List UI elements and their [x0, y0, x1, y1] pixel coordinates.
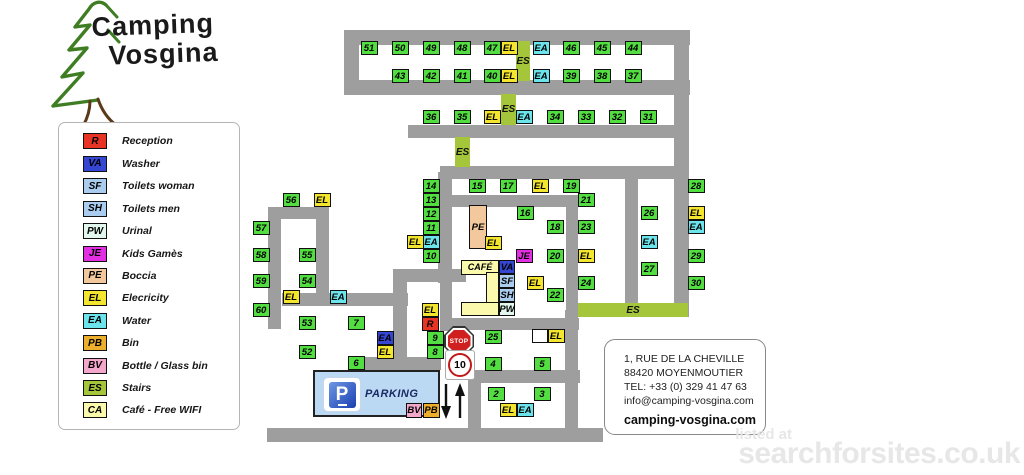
- pitch-36: 36: [423, 110, 440, 124]
- amenity-EL: EL: [532, 179, 549, 193]
- amenity-EA: EA: [423, 235, 440, 249]
- legend-label-ES: Stairs: [122, 382, 151, 394]
- pitch-42: 42: [423, 69, 440, 83]
- legend-swatch-PB: PB: [83, 335, 107, 351]
- pitch-33: 33: [578, 110, 595, 124]
- pitch-24: 24: [578, 276, 595, 290]
- pitch-51: 51: [361, 41, 378, 55]
- amenity-EL: EL: [314, 193, 331, 207]
- pitch-54: 54: [299, 274, 316, 288]
- contact-phone: TEL: +33 (0) 329 41 47 63: [624, 381, 765, 395]
- legend-item-ES: ESStairs: [83, 380, 239, 396]
- legend-swatch-CA: CA: [83, 402, 107, 418]
- amenity-BV: BV: [406, 403, 422, 418]
- pitch-43: 43: [392, 69, 409, 83]
- pitch-5: 5: [534, 357, 551, 371]
- pitch-16: 16: [517, 206, 534, 220]
- pitch-25: 25: [485, 330, 502, 344]
- pitch-3: 3: [534, 387, 551, 401]
- legend-swatch-EL: EL: [83, 290, 107, 306]
- legend-label-BV: Bottle / Glass bin: [122, 360, 208, 372]
- amenity-EL: EL: [407, 235, 424, 249]
- speed-limit-value: 10: [448, 353, 472, 377]
- amenity-EL: EL: [501, 69, 518, 83]
- road-segment: [440, 269, 452, 331]
- contact-card: 1, RUE DE LA CHEVILLE 88420 MOYENMOUTIER…: [604, 339, 766, 435]
- road-segment: [468, 377, 481, 435]
- pitch-13: 13: [423, 193, 440, 207]
- amenity-R: R: [422, 317, 439, 331]
- legend-item-PB: PBBin: [83, 335, 239, 351]
- amenity-EA: EA: [517, 403, 534, 417]
- amenity-EL: EL: [377, 345, 394, 359]
- pitch-23: 23: [578, 220, 595, 234]
- legend-swatch-ES: ES: [83, 380, 107, 396]
- legend-swatch-SH: SH: [83, 201, 107, 217]
- pitch-35: 35: [454, 110, 471, 124]
- stairs-strip: ES: [578, 303, 688, 317]
- pitch-32: 32: [609, 110, 626, 124]
- pitch-10: 10: [423, 249, 440, 263]
- legend-swatch-R: R: [83, 133, 107, 149]
- pitch-41: 41: [454, 69, 471, 83]
- stairs-strip: ES: [516, 41, 530, 81]
- pitch-14: 14: [423, 179, 440, 193]
- pitch-30: 30: [688, 276, 705, 290]
- amenity-VA: VA: [499, 260, 515, 274]
- contact-website: camping-vosgina.com: [624, 413, 765, 427]
- page: Camping Vosgina RReceptionVAWasherSFToil…: [0, 0, 1024, 475]
- legend-item-CA: CACafé - Free WIFI: [83, 402, 239, 418]
- legend-label-R: Reception: [122, 135, 173, 147]
- pitch-19: 19: [563, 179, 580, 193]
- legend-swatch-JE: JE: [83, 246, 107, 262]
- road-segment: [316, 207, 329, 306]
- legend-swatch-SF: SF: [83, 178, 107, 194]
- legend-item-SF: SFToilets woman: [83, 178, 239, 194]
- parking-label: PARKING: [365, 388, 418, 400]
- pitch-20: 20: [547, 249, 564, 263]
- pitch-18: 18: [547, 220, 564, 234]
- legend-label-EA: Water: [122, 315, 151, 327]
- pitch-34: 34: [547, 110, 564, 124]
- legend-item-SH: SHToilets men: [83, 201, 239, 217]
- amenity-EA: EA: [533, 41, 550, 55]
- contact-address-line2: 88420 MOYENMOUTIER: [624, 367, 765, 381]
- amenity-SF: SF: [499, 274, 515, 288]
- stairs-strip: ES: [501, 94, 516, 125]
- legend-label-PE: Boccia: [122, 270, 156, 282]
- legend-label-SF: Toilets woman: [122, 180, 195, 192]
- amenity-EA: EA: [377, 331, 394, 345]
- pitch-26: 26: [641, 206, 658, 220]
- pitch-55: 55: [299, 248, 316, 262]
- legend-item-R: RReception: [83, 133, 239, 149]
- pitch-40: 40: [484, 69, 501, 83]
- amenity-SH: SH: [499, 288, 515, 302]
- road-segment: [468, 370, 580, 383]
- legend-label-VA: Washer: [122, 158, 160, 170]
- pitch-45: 45: [594, 41, 611, 55]
- road-segment: [625, 172, 638, 303]
- pitch-31: 31: [640, 110, 657, 124]
- pitch-12: 12: [423, 207, 440, 221]
- pitch-46: 46: [563, 41, 580, 55]
- road-segment: [438, 172, 452, 283]
- amenity-EA: EA: [688, 220, 705, 234]
- amenity-JE: JE: [516, 249, 533, 263]
- two-way-arrows-icon: [437, 382, 467, 420]
- legend-label-JE: Kids Gamès: [122, 248, 183, 260]
- amenity-EL: EL: [485, 236, 502, 250]
- pitch-53: 53: [299, 316, 316, 330]
- road-segment: [268, 207, 281, 329]
- pitch-27: 27: [641, 262, 658, 276]
- pitch-11: 11: [423, 221, 440, 235]
- road-segment: [408, 125, 688, 138]
- pitch-60: 60: [253, 303, 270, 317]
- pitch-29: 29: [688, 249, 705, 263]
- stairs-strip: ES: [455, 137, 470, 167]
- legend-label-SH: Toilets men: [122, 203, 180, 215]
- pitch-39: 39: [563, 69, 580, 83]
- pitch-21: 21: [578, 193, 595, 207]
- pitch-49: 49: [423, 41, 440, 55]
- pitch-48: 48: [454, 41, 471, 55]
- speed-limit-sign-icon: 10: [445, 350, 475, 380]
- amenity-EL: EL: [283, 290, 300, 304]
- amenity-EL: EL: [500, 403, 517, 417]
- parking-icon: P: [323, 377, 361, 412]
- building-block: [532, 329, 548, 343]
- contact-email: info@camping-vosgina.com: [624, 395, 765, 409]
- amenity-EA: EA: [516, 110, 533, 124]
- pitch-6: 6: [348, 356, 365, 370]
- amenity-EL: EL: [484, 110, 501, 124]
- pitch-56: 56: [283, 193, 300, 207]
- pitch-37: 37: [625, 69, 642, 83]
- legend: RReceptionVAWasherSFToilets womanSHToile…: [58, 122, 240, 430]
- legend-swatch-VA: VA: [83, 156, 107, 172]
- pitch-4: 4: [485, 357, 502, 371]
- pitch-22: 22: [547, 288, 564, 302]
- legend-item-VA: VAWasher: [83, 156, 239, 172]
- legend-item-JE: JEKids Gamès: [83, 246, 239, 262]
- amenity-EL: EL: [422, 303, 439, 317]
- legend-swatch-PE: PE: [83, 268, 107, 284]
- legend-label-EL: Elecricity: [122, 292, 169, 304]
- road-segment: [440, 166, 688, 179]
- amenity-EA: EA: [641, 235, 658, 249]
- legend-item-PW: PWUrinal: [83, 223, 239, 239]
- legend-label-PB: Bin: [122, 337, 139, 349]
- road-segment: [267, 428, 603, 442]
- legend-label-PW: Urinal: [122, 225, 152, 237]
- building-block: [486, 272, 499, 304]
- pitch-47: 47: [484, 41, 501, 55]
- legend-swatch-BV: BV: [83, 358, 107, 374]
- amenity-EL: EL: [501, 41, 518, 55]
- pitch-50: 50: [392, 41, 409, 55]
- pitch-2: 2: [488, 387, 505, 401]
- legend-item-EA: EAWater: [83, 313, 239, 329]
- pitch-44: 44: [625, 41, 642, 55]
- pitch-7: 7: [348, 316, 365, 330]
- pitch-59: 59: [253, 274, 270, 288]
- amenity-EA: EA: [330, 290, 347, 304]
- amenity-EL: EL: [688, 206, 705, 220]
- legend-swatch-PW: PW: [83, 223, 107, 239]
- pitch-15: 15: [469, 179, 486, 193]
- legend-swatch-EA: EA: [83, 313, 107, 329]
- road-segment: [344, 30, 359, 95]
- amenity-EL: EL: [548, 329, 565, 343]
- pitch-17: 17: [500, 179, 517, 193]
- pitch-57: 57: [253, 221, 270, 235]
- pitch-28: 28: [688, 179, 705, 193]
- legend-item-PE: PEBoccia: [83, 268, 239, 284]
- pitch-58: 58: [253, 248, 270, 262]
- pitch-38: 38: [594, 69, 611, 83]
- legend-item-EL: ELElecricity: [83, 290, 239, 306]
- legend-item-BV: BVBottle / Glass bin: [83, 358, 239, 374]
- legend-label-CA: Café - Free WIFI: [122, 404, 201, 416]
- building-block: [461, 302, 499, 316]
- amenity-PW: PW: [499, 302, 515, 316]
- amenity-EL: EL: [578, 249, 595, 263]
- pitch-9: 9: [427, 331, 444, 345]
- pitch-8: 8: [427, 345, 444, 359]
- contact-address-line1: 1, RUE DE LA CHEVILLE: [624, 353, 765, 367]
- pitch-52: 52: [299, 345, 316, 359]
- amenity-EL: EL: [527, 276, 544, 290]
- amenity-EA: EA: [533, 69, 550, 83]
